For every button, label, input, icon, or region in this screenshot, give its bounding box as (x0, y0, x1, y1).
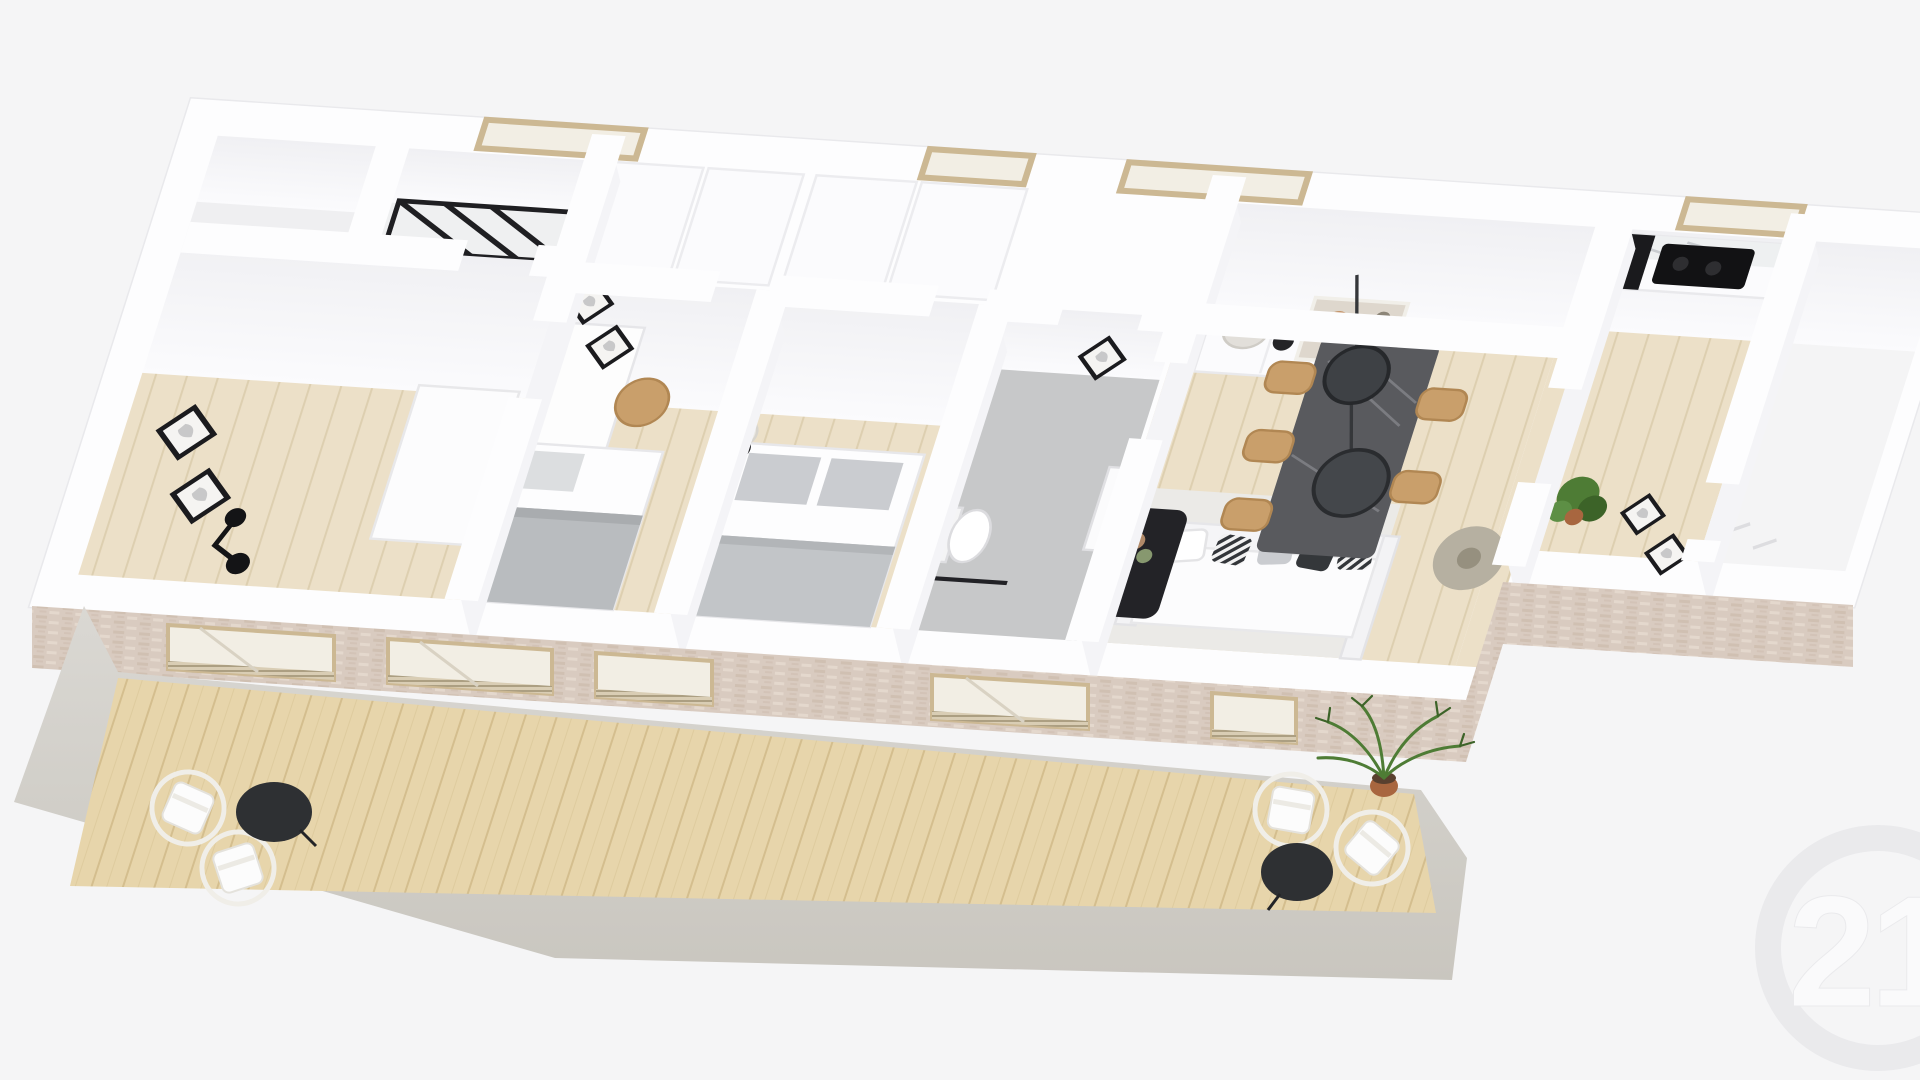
window-icon (921, 149, 1033, 184)
window-icon (1679, 199, 1804, 235)
floor-plan-render: 21 (0, 0, 1920, 1080)
outdoor-table (1261, 843, 1333, 901)
glazed-door-icon (388, 639, 552, 694)
cooktop-icon (1651, 243, 1756, 289)
watermark-21: 21 (1788, 864, 1920, 1040)
glazed-door-icon (596, 653, 712, 705)
glazed-door-icon (1212, 693, 1296, 743)
glazed-door-icon (168, 625, 334, 680)
glazed-door-icon (932, 675, 1088, 729)
outdoor-table (236, 782, 312, 842)
